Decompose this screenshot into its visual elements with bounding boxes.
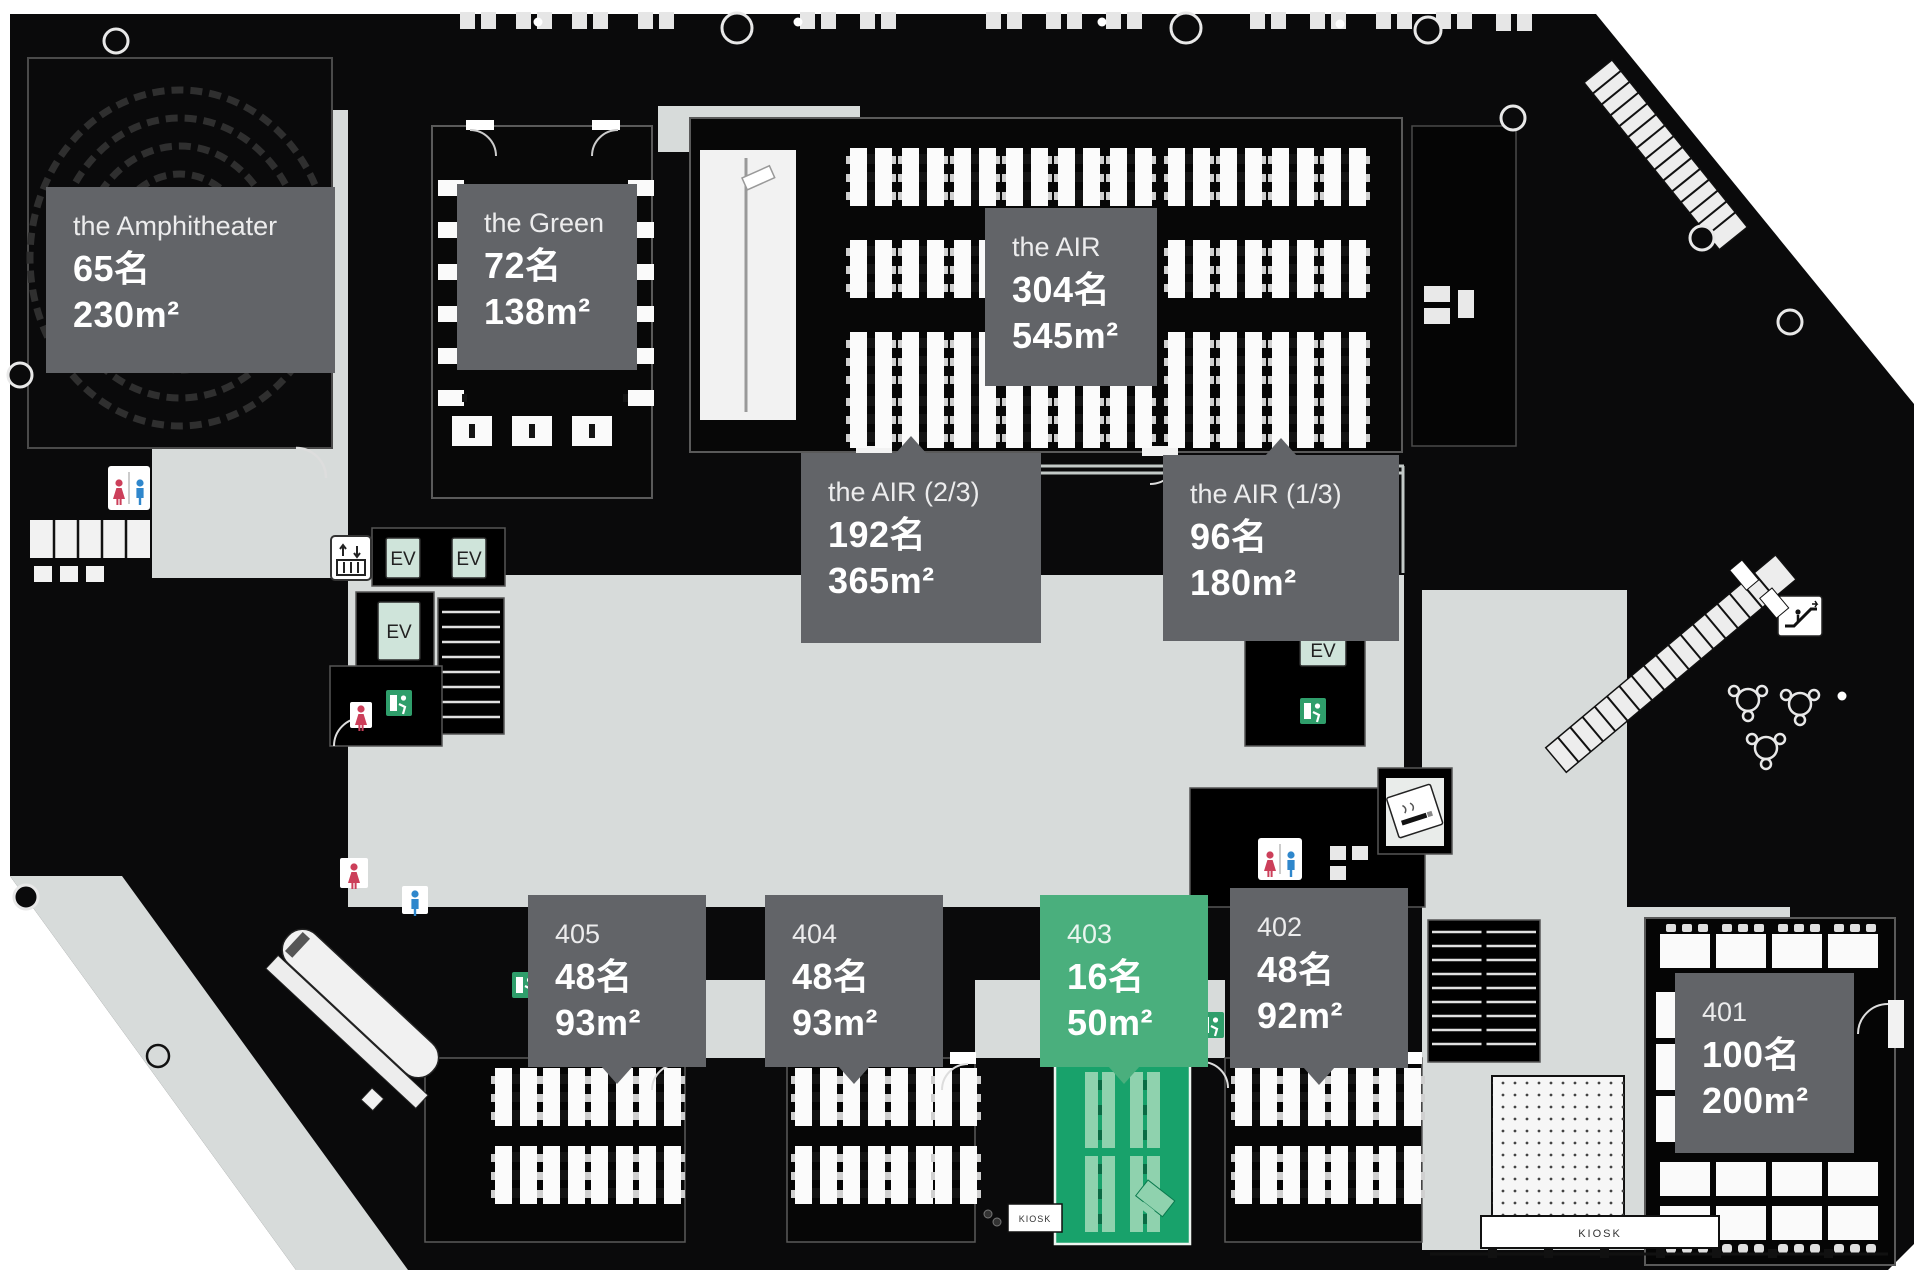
room-label-the-green[interactable]: the Green 72名 138m²: [457, 184, 637, 370]
room-capacity: 48名: [792, 954, 943, 1000]
room-label-402[interactable]: 402 48名 92m²: [1230, 888, 1408, 1068]
restroom-icon: [1258, 838, 1302, 880]
room-label-the-air[interactable]: the AIR 304名 545m²: [985, 208, 1157, 386]
room-area: 92m²: [1257, 993, 1408, 1039]
restroom-icon: [108, 466, 150, 510]
room-capacity: 48名: [555, 954, 706, 1000]
pointer-up: [895, 436, 927, 454]
room-area: 200m²: [1702, 1078, 1854, 1124]
room-capacity: 65名: [73, 246, 335, 292]
stairs-hatch-right: [1428, 920, 1540, 1062]
room-capacity: 100名: [1702, 1032, 1854, 1078]
room-name: the Amphitheater: [73, 207, 335, 246]
room-area: 93m²: [555, 1000, 706, 1046]
room-label-401[interactable]: 401 100名 200m²: [1675, 973, 1854, 1153]
ev-label: EV: [456, 549, 482, 570]
restroom-female-icon: [350, 702, 372, 731]
pointer-down: [1303, 1067, 1335, 1085]
room-name: 401: [1702, 993, 1854, 1032]
ev-label: EV: [386, 622, 412, 643]
room-capacity: 72名: [484, 243, 637, 289]
room-label-405[interactable]: 405 48名 93m²: [528, 895, 706, 1067]
escalator-icon: [1778, 596, 1822, 636]
room-name: 403: [1067, 915, 1208, 954]
room-name: the AIR (1/3): [1190, 475, 1399, 514]
room-name: 405: [555, 915, 706, 954]
room-area: 138m²: [484, 289, 637, 335]
room-area: 365m²: [828, 558, 1041, 604]
room-area: 50m²: [1067, 1000, 1208, 1046]
pointer-down: [601, 1066, 633, 1084]
room-name: the AIR (2/3): [828, 473, 1041, 512]
smoking-room: [1378, 768, 1452, 854]
stairs-hatch: [438, 598, 504, 734]
floor-map: KIOSK KIOSK EV EV EV EV the Amphitheater: [0, 0, 1920, 1286]
ev-label: EV: [390, 549, 416, 570]
room-capacity: 16名: [1067, 954, 1208, 1000]
room-capacity: 48名: [1257, 947, 1408, 993]
room-name: the AIR: [1012, 228, 1157, 267]
room-label-404[interactable]: 404 48名 93m²: [765, 895, 943, 1067]
pointer-down: [838, 1066, 870, 1084]
room-405: [425, 1052, 685, 1242]
room-404: [787, 1052, 981, 1242]
exit-icon: [386, 690, 412, 716]
room-name: 402: [1257, 908, 1408, 947]
restroom-male-icon: [402, 886, 428, 916]
ev-label: EV: [1310, 641, 1336, 662]
exit-icon: [1300, 698, 1326, 724]
room-capacity: 304名: [1012, 267, 1157, 313]
room-label-the-air-1-3[interactable]: the AIR (1/3) 96名 180m²: [1163, 455, 1399, 641]
room-area: 180m²: [1190, 560, 1399, 606]
room-label-amphitheater[interactable]: the Amphitheater 65名 230m²: [46, 187, 335, 373]
room-area: 93m²: [792, 1000, 943, 1046]
kiosk-counter-long: KIOSK: [1481, 1216, 1719, 1248]
room-area: 230m²: [73, 292, 335, 338]
pointer-down: [1108, 1066, 1140, 1084]
room-name: 404: [792, 915, 943, 954]
restroom-female-icon: [340, 858, 368, 889]
room-area: 545m²: [1012, 313, 1157, 359]
room-label-403-selected[interactable]: 403 16名 50m²: [1040, 895, 1208, 1067]
room-name: the Green: [484, 204, 637, 243]
room-capacity: 192名: [828, 512, 1041, 558]
kiosk-label: KIOSK: [1578, 1228, 1622, 1240]
kiosk-label: KIOSK: [1019, 1214, 1052, 1224]
pointer-up: [1265, 438, 1297, 456]
room-capacity: 96名: [1190, 514, 1399, 560]
elevator-icon: [331, 536, 371, 580]
room-label-the-air-2-3[interactable]: the AIR (2/3) 192名 365m²: [801, 453, 1041, 643]
